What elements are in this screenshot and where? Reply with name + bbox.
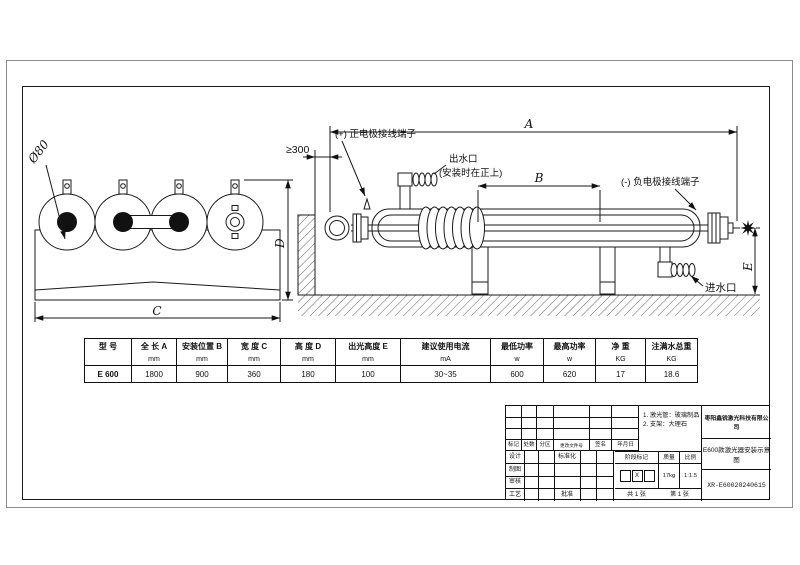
- left-end-assembly: [325, 214, 368, 242]
- value-length-a: 1800: [132, 366, 177, 383]
- col-header-net-weight: 净 重KG: [596, 339, 646, 366]
- sign-process: 工艺: [506, 489, 524, 501]
- value-min-power: 600: [491, 366, 544, 383]
- side-view: (+) 正电极接线端子 出水口 (安装时在正上) (-) 负电极接线端子 进水口…: [286, 117, 760, 316]
- stage-section: 阶段标记 质量 比例 X 17kg 1:1.5 共 1 张 第 1 张: [615, 451, 701, 501]
- tube-section-4: [207, 194, 263, 250]
- col-header-model: 型 号: [85, 339, 132, 366]
- dim-c: C: [35, 302, 280, 322]
- value-max-power: 620: [544, 366, 596, 383]
- scale-header: 比例: [680, 452, 701, 464]
- company-name: 枣阳鑫锐激光科技有限公司: [702, 406, 771, 439]
- col-header-current: 建议使用电流mA: [401, 339, 491, 366]
- dim-min300: ≥300: [286, 144, 342, 215]
- revision-col-mark: 标记: [506, 440, 521, 451]
- dim-c-label: C: [152, 304, 161, 318]
- col-header-length-a: 全 长 Amm: [132, 339, 177, 366]
- technical-drawing: Ø80 C D: [22, 86, 770, 336]
- light-output-icon: [740, 220, 756, 236]
- outlet-note-label: (安装时在正上): [439, 167, 502, 179]
- title-block: 标记 处数 分区 更改文件号 签名 年月日 1. 激光管：玻璃制品 2. 支架：…: [505, 405, 770, 500]
- inlet-pipe: [658, 246, 695, 277]
- col-header-width-c: 宽 度 Cmm: [228, 339, 281, 366]
- sign-design: 设计: [506, 451, 524, 463]
- value-net-weight: 17: [596, 366, 646, 383]
- neg-electrode-leader: [675, 189, 696, 210]
- stage-mark-header: 阶段标记: [615, 452, 659, 464]
- value-width-c: 360: [228, 366, 281, 383]
- stage-mark-boxes: X: [615, 464, 659, 489]
- col-header-full-weight: 注满水总重KG: [646, 339, 698, 366]
- sign-standardize: 标准化: [554, 451, 580, 463]
- weight-header: 质量: [659, 452, 680, 464]
- stage-box-2: X: [632, 470, 643, 482]
- title-block-right: 枣阳鑫锐激光科技有限公司 E600款激光器安装示意图 XR-E600202406…: [701, 406, 771, 501]
- value-height-d: 180: [281, 366, 336, 383]
- stage-box-1: [620, 470, 631, 482]
- signature-grid: 设计 标准化 制图 审核 工艺 批准: [506, 451, 614, 501]
- value-full-weight: 18.6: [646, 366, 698, 383]
- min300-label: ≥300: [286, 144, 309, 156]
- note-line-2: 2. 支架：大理石: [643, 420, 701, 429]
- dim-e: E: [741, 228, 760, 294]
- col-header-beam-e: 出光高度 Emm: [336, 339, 401, 366]
- value-mount-b: 900: [177, 366, 228, 383]
- sheet-count-row: 共 1 张 第 1 张: [615, 489, 701, 502]
- wall-section: [298, 215, 315, 295]
- drawing-title: E600款激光器安装示意图: [702, 439, 771, 470]
- col-header-min-power: 最低功率w: [491, 339, 544, 366]
- revision-col-count: 处数: [522, 440, 536, 451]
- outlet-pipe: [398, 173, 437, 209]
- spec-data-row: E 600 1800 900 360 180 100 30~35 600 620…: [85, 366, 698, 383]
- scale-value: 1:1.5: [680, 464, 701, 489]
- right-end-assembly: [708, 213, 740, 243]
- inlet-leader: [691, 276, 703, 286]
- tube-stems: [63, 180, 239, 194]
- value-current: 30~35: [401, 366, 491, 383]
- pos-electrode-label: (+) 正电极接线端子: [335, 128, 417, 140]
- drawing-sheet: Ø80 C D: [0, 0, 800, 565]
- sign-check: 审核: [506, 476, 524, 488]
- value-beam-e: 100: [336, 366, 401, 383]
- sheet-page: 第 1 张: [670, 489, 689, 502]
- tube-bore-1: [57, 212, 77, 232]
- pos-electrode-leader: [342, 141, 365, 196]
- revision-col-date: 年月日: [612, 440, 639, 451]
- sign-draft: 制图: [506, 464, 524, 476]
- sign-approve: 批准: [554, 489, 580, 501]
- tube-bore-3: [169, 212, 189, 232]
- value-model: E 600: [85, 366, 132, 383]
- revision-col-doc-no: 更改文件号: [554, 440, 589, 451]
- inlet-label: 进水口: [705, 282, 737, 294]
- ground-section: [298, 295, 760, 316]
- spec-header-row: 型 号 全 长 Amm 安装位置 Bmm 宽 度 Cmm 高 度 Dmm 出光高…: [85, 339, 698, 366]
- col-header-max-power: 最高功率w: [544, 339, 596, 366]
- revision-col-sign: 签名: [590, 440, 611, 451]
- dia80-label: Ø80: [25, 137, 52, 166]
- revision-grid: 标记 处数 分区 更改文件号 签名 年月日: [506, 406, 639, 451]
- weight-value: 17kg: [659, 464, 680, 489]
- col-header-mount-b: 安装位置 Bmm: [177, 339, 228, 366]
- notes-cell: 1. 激光管：玻璃制品 2. 支架：大理石: [640, 406, 701, 451]
- dim-b-label: B: [534, 171, 544, 185]
- cooling-coil: [419, 207, 485, 249]
- stage-box-3: [644, 470, 655, 482]
- revision-col-zone: 分区: [537, 440, 553, 451]
- outlet-label: 出水口: [449, 153, 478, 165]
- dim-e-label: E: [741, 262, 755, 272]
- tube-bore-2: [113, 212, 133, 232]
- col-header-height-d: 高 度 Dmm: [281, 339, 336, 366]
- dim-d-label: D: [273, 238, 287, 249]
- drawing-number: XR-E60020240615: [702, 470, 771, 501]
- spec-table: 型 号 全 长 Amm 安装位置 Bmm 宽 度 Cmm 高 度 Dmm 出光高…: [84, 338, 698, 383]
- sheet-total: 共 1 张: [627, 489, 646, 502]
- electrode-pin: [364, 199, 370, 209]
- note-line-1: 1. 激光管：玻璃制品: [643, 411, 701, 420]
- end-view: Ø80 C D: [25, 137, 293, 322]
- dim-a-label: A: [524, 117, 534, 131]
- neg-electrode-label: (-) 负电极接线端子: [621, 176, 700, 188]
